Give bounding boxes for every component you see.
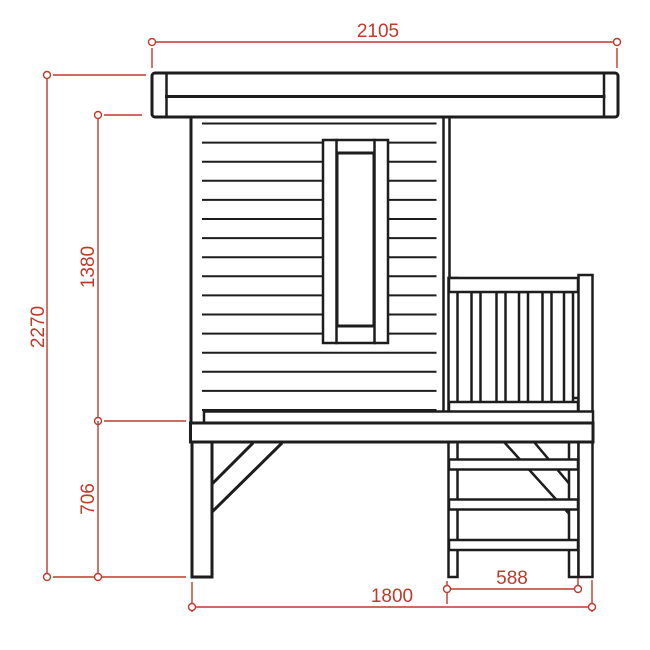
deck-floor: [191, 412, 594, 443]
dimension-endpoint: [575, 586, 582, 593]
dimension-endpoint: [44, 72, 51, 79]
ladder-rung-2: [449, 500, 578, 510]
dimension-base-width: 1800: [189, 580, 596, 612]
dimension-endpoint: [95, 574, 102, 581]
tall-window: [323, 140, 388, 343]
railing-top-rail: [449, 278, 578, 292]
dimension-endpoint: [44, 574, 51, 581]
deck-rim-joist: [191, 423, 594, 442]
dimension-ladder-width: 588: [444, 568, 582, 604]
dimension-label-roof-width: 2105: [357, 21, 399, 42]
dimension-endpoint: [149, 39, 156, 46]
drawing-canvas: 2105 2270 1380 706: [0, 0, 650, 650]
window-pane: [337, 153, 374, 326]
ladder-rung-3: [449, 540, 578, 550]
diagonal-brace-left-outer: [213, 444, 281, 511]
dimension-label-leg-height: 706: [78, 483, 99, 515]
dimension-endpoint: [189, 604, 196, 611]
railing-baluster-2: [497, 292, 506, 403]
dimension-endpoint: [444, 586, 451, 593]
left-support: [192, 442, 281, 577]
deck-board: [204, 412, 593, 424]
playhouse-elevation-drawing: 2105 2270 1380 706: [0, 0, 650, 650]
dimension-roof-width: 2105: [149, 21, 621, 68]
dimension-endpoint: [614, 39, 621, 46]
dimension-label-ladder-width: 588: [496, 568, 528, 589]
clapboard-wall: [191, 117, 450, 424]
dimension-label-cabin-height: 1380: [78, 246, 99, 288]
dimension-cabin-height: 1380: [78, 112, 186, 425]
dimension-total-height: 2270: [28, 72, 186, 581]
ladder-rung-1: [449, 460, 578, 470]
railing-baluster-1: [472, 292, 481, 403]
railing-baluster-3: [519, 292, 528, 403]
support-leg-left: [192, 442, 212, 577]
dimension-endpoint: [95, 112, 102, 119]
railing-baluster-5: [564, 292, 573, 403]
dimension-leg-height: 706: [78, 421, 102, 581]
dimension-label-base-width: 1800: [371, 586, 413, 607]
flat-roof: [152, 73, 618, 117]
siding-boards: [203, 124, 436, 411]
dimension-label-total-height: 2270: [28, 306, 49, 348]
railing-baluster-4: [543, 292, 552, 403]
dimension-endpoint: [589, 604, 596, 611]
porch-railing: [449, 278, 578, 413]
